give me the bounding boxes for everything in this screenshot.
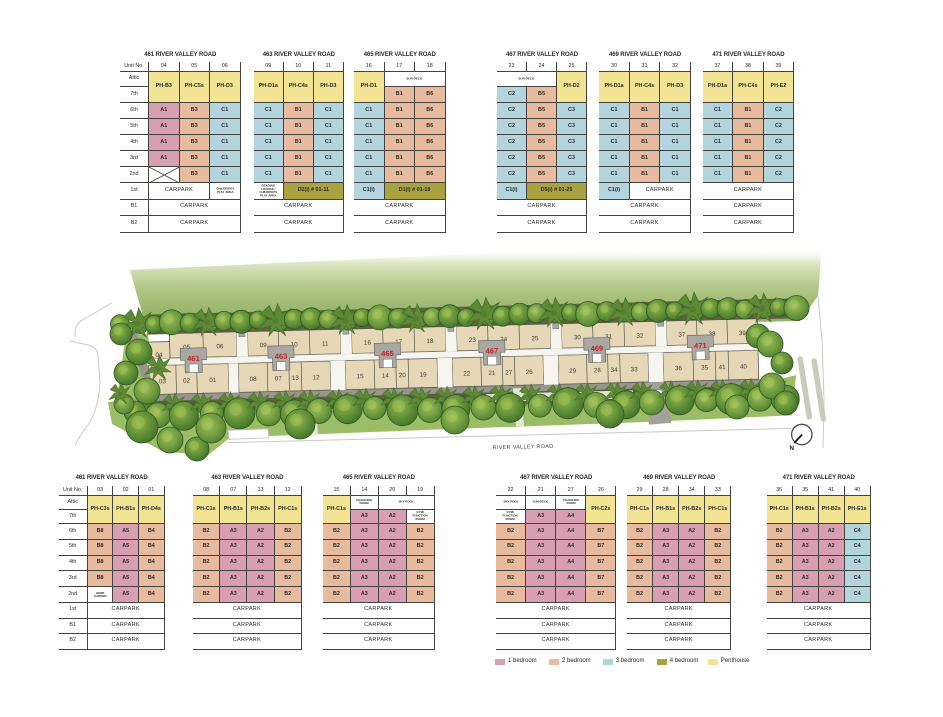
svg-text:40: 40 [740,363,748,370]
svg-text:16: 16 [364,339,372,346]
svg-text:471: 471 [694,341,707,350]
svg-text:34: 34 [610,367,618,374]
svg-text:25: 25 [531,335,539,342]
svg-text:467: 467 [486,346,499,355]
svg-text:07: 07 [275,375,283,382]
svg-text:N: N [790,445,795,452]
svg-text:22: 22 [463,370,471,377]
svg-text:18: 18 [426,338,434,345]
svg-text:37: 37 [678,332,686,339]
svg-text:01: 01 [209,377,217,384]
svg-text:28: 28 [594,367,602,374]
svg-text:14: 14 [382,373,390,380]
svg-text:469: 469 [591,344,604,353]
svg-text:23: 23 [469,337,477,344]
svg-text:06: 06 [216,343,224,350]
svg-text:26: 26 [526,369,534,376]
svg-text:465: 465 [381,349,394,358]
svg-text:41: 41 [719,364,727,371]
svg-text:463: 463 [275,352,288,361]
svg-text:32: 32 [636,333,644,340]
svg-text:RIVER VALLEY ROAD: RIVER VALLEY ROAD [493,444,554,451]
svg-text:19: 19 [419,372,427,379]
svg-text:12: 12 [312,374,320,381]
svg-text:36: 36 [675,365,683,372]
svg-text:08: 08 [249,376,257,383]
svg-text:461: 461 [187,354,200,363]
svg-text:33: 33 [631,366,639,373]
svg-text:13: 13 [292,375,300,382]
svg-text:15: 15 [356,373,364,380]
svg-text:02: 02 [183,378,191,385]
svg-text:11: 11 [322,341,329,348]
svg-text:27: 27 [505,369,513,376]
svg-text:39: 39 [739,330,747,337]
svg-text:29: 29 [569,368,577,375]
svg-text:09: 09 [260,342,268,349]
svg-text:21: 21 [488,370,496,377]
svg-text:30: 30 [574,334,582,341]
svg-text:20: 20 [399,372,407,379]
svg-text:35: 35 [701,364,709,371]
